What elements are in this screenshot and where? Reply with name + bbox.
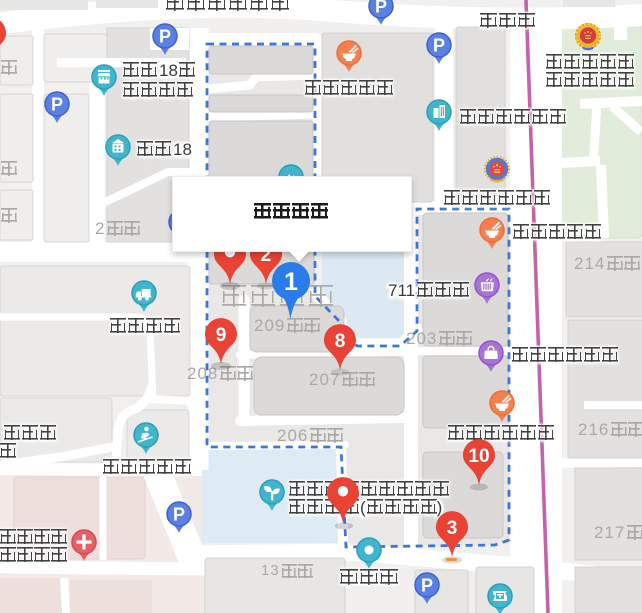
svg-text:8: 8 [335, 331, 346, 352]
svg-text:P: P [159, 27, 171, 47]
svg-text:9: 9 [216, 325, 227, 346]
svg-text:P: P [433, 36, 445, 56]
svg-text:P: P [375, 0, 387, 17]
svg-text:1: 1 [284, 268, 298, 296]
svg-text:10: 10 [468, 446, 489, 467]
svg-text:3: 3 [447, 518, 458, 539]
svg-text:P: P [421, 576, 433, 596]
svg-text:P: P [173, 505, 185, 525]
svg-text:P: P [51, 95, 63, 115]
